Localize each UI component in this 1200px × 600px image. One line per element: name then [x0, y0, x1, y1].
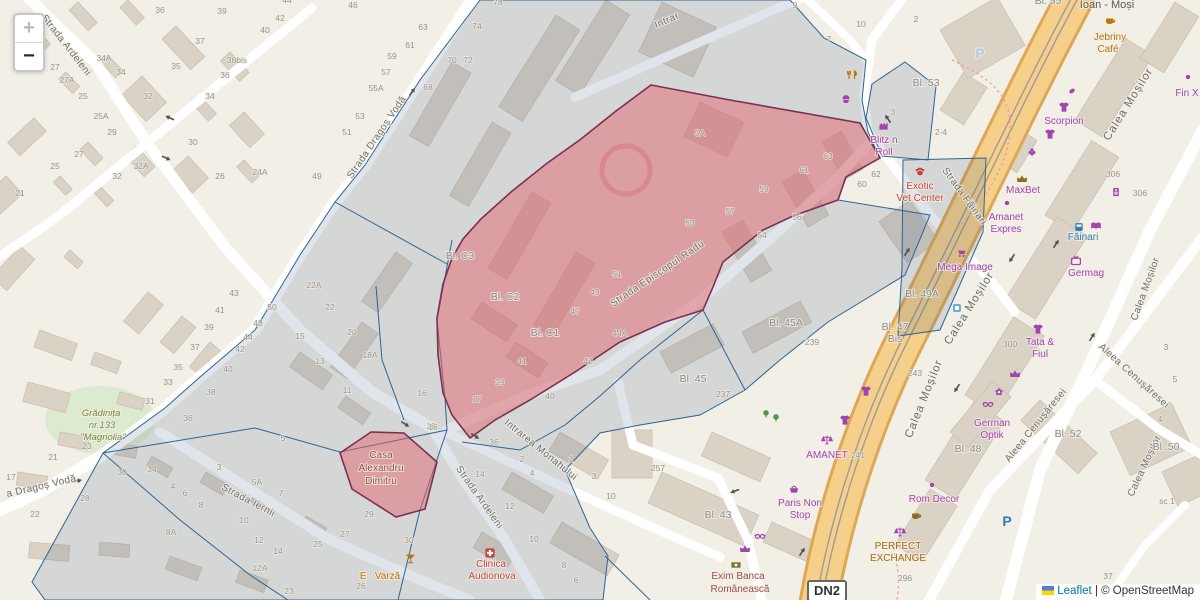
house-number: 5 [1173, 374, 1178, 384]
poi-label: Roll [875, 147, 892, 158]
dot-icon [1005, 201, 1009, 205]
poi-label: Casa [369, 450, 393, 461]
house-number: 6 [574, 575, 579, 585]
house-number: 46 [348, 0, 358, 10]
house-number: 3 [217, 462, 222, 472]
house-number: 10 [606, 491, 616, 501]
house-number: 26 [215, 171, 225, 181]
house-number: 59 [387, 51, 397, 61]
poi-label: Rom Decor [909, 494, 960, 505]
house-number: 31 [145, 396, 155, 406]
zoom-control: + − [13, 13, 45, 72]
house-number: 5A [252, 477, 263, 487]
house-number: 51 [612, 269, 622, 279]
house-number: 5 [281, 433, 286, 443]
house-number: 40 [260, 25, 270, 35]
poi-label: E : Varză [360, 571, 401, 582]
house-number: 35 [173, 362, 183, 372]
house-number: 23 [284, 586, 294, 596]
house-number: 22 [30, 509, 40, 519]
house-number: 32 [143, 91, 153, 101]
poi-label: Paris Non [778, 498, 822, 509]
house-number: 16 [428, 422, 438, 432]
house-number: 39 [204, 322, 214, 332]
house-number: 16 [417, 388, 427, 398]
house-number: 13 [315, 356, 325, 366]
house-number: 57 [381, 67, 391, 77]
house-number: 37 [1103, 571, 1113, 581]
house-number: 60 [857, 179, 867, 189]
house-number: 239 [805, 337, 819, 347]
house-number: 35 [171, 61, 181, 71]
house-number: 300 [1003, 339, 1017, 349]
house-number: 51 [342, 127, 352, 137]
house-number: 8 [562, 560, 567, 570]
house-number: 34 [147, 464, 157, 474]
house-number: 3 [891, 107, 896, 117]
poi-label: Jebriny [1094, 32, 1126, 43]
poi-label: Clinica [476, 559, 506, 570]
house-number: 40 [545, 391, 555, 401]
block-label: Bl. C2 [491, 291, 520, 303]
osm-credit-link[interactable]: © OpenStreetMap [1101, 585, 1194, 597]
poi-label: Audionova [468, 571, 516, 582]
house-number: 27A [59, 75, 74, 85]
house-number: 17 [472, 394, 482, 404]
house-number: 4 [1158, 414, 1163, 424]
house-number: 3 [592, 471, 597, 481]
block-label: Bis [888, 333, 903, 345]
house-number: 1 [569, 454, 574, 464]
dot-icon [930, 483, 934, 487]
house-number: 78 [493, 0, 503, 7]
house-number: 74 [472, 21, 482, 31]
house-number: 12 [254, 535, 264, 545]
house-number: 63 [823, 151, 833, 161]
poi-label: Expres [990, 224, 1021, 235]
house-number: 36 [220, 70, 230, 80]
poi-label: AMANET [806, 450, 848, 461]
house-number: 59 [759, 184, 769, 194]
house-number: 36 [183, 413, 193, 423]
house-number: 21 [48, 452, 58, 462]
poi-label: Ioan - Moși [1080, 0, 1134, 11]
poi-label: Germag [1068, 268, 1104, 279]
house-number: 57 [725, 206, 735, 216]
house-number: 3 [1164, 342, 1169, 352]
poi-label: EXCHANGE [870, 553, 926, 564]
house-number: 30 [404, 535, 414, 545]
house-number: 18A [362, 350, 377, 360]
house-number: 27 [340, 529, 350, 539]
poi-label: Dimitru [365, 476, 397, 487]
map-canvas[interactable]: Strada ArdeleniStrada Dragoș VodăIntrarS… [0, 0, 1200, 600]
poi-label: German [974, 418, 1010, 429]
busstop-icon [953, 304, 961, 312]
house-number: 306 [1133, 188, 1147, 198]
house-number: 25 [313, 539, 323, 549]
clinic-icon [485, 548, 494, 557]
poi-label: P [1002, 513, 1011, 529]
house-number: 49 [312, 171, 322, 181]
house-number: 36bis [227, 55, 247, 65]
house-number: 41 [517, 356, 527, 366]
house-number: 37 [190, 342, 200, 352]
house-number: 49 [590, 287, 600, 297]
house-number: 26 [356, 581, 366, 591]
house-number: 50 [267, 302, 277, 312]
house-number: 53 [685, 218, 695, 228]
attribution-bar: Leaflet | © OpenStreetMap [1036, 584, 1200, 600]
house-number: 37 [195, 36, 205, 46]
house-number: 63 [418, 22, 428, 32]
block-label: Bl. C3 [446, 250, 475, 262]
house-number: 34 [205, 91, 215, 101]
house-number: 42 [275, 13, 285, 23]
poi-label: PERFECT [875, 541, 922, 552]
house-number: 28 [80, 493, 90, 503]
house-number: 27 [50, 62, 60, 72]
poi-label: Blitz n [870, 135, 897, 146]
poi-label: nr.133 [89, 420, 116, 431]
poi-label: Exotic [906, 181, 933, 192]
house-number: 39 [217, 6, 227, 16]
house-number: 9 [793, 0, 798, 10]
money-icon [731, 562, 740, 568]
house-number: 32A [133, 161, 148, 171]
house-number: 2 [520, 454, 525, 464]
block-label: Bl. 45 [680, 373, 707, 385]
house-number: 39 [495, 377, 505, 387]
house-number: 14 [475, 469, 485, 479]
house-number: 38 [206, 387, 216, 397]
house-number: 44 [243, 332, 253, 342]
house-number: 54 [757, 230, 767, 240]
house-number: 56 [792, 212, 802, 222]
poi-label: Scorpion [1044, 116, 1083, 127]
house-number: 237 [716, 389, 730, 399]
house-number: 14 [273, 546, 283, 556]
house-number: 55A [368, 83, 383, 93]
house-number: 2 [914, 14, 919, 24]
house-number: 22 [325, 302, 335, 312]
house-number: 29 [107, 127, 117, 137]
house-number: 21 [15, 188, 25, 198]
house-number: 40 [223, 364, 233, 374]
house-number: 257 [651, 463, 665, 473]
ukraine-flag-icon [1042, 586, 1054, 598]
house-number: 34 [116, 67, 126, 77]
poi-label: Café [1097, 44, 1119, 55]
block-label: Bl. 53 [913, 77, 940, 89]
block-label: Bl. C1 [531, 327, 560, 339]
house-number: 10 [239, 515, 249, 525]
poi-label: Tata & [1026, 337, 1055, 348]
house-number: 61 [405, 40, 415, 50]
house-number: 42 [583, 356, 593, 366]
house-number: 10 [529, 534, 539, 544]
house-number: 17 [6, 472, 16, 482]
house-number: 29 [364, 509, 374, 519]
house-number: 27 [74, 149, 84, 159]
house-number: 2-4 [935, 127, 948, 137]
house-number: 4 [171, 481, 176, 491]
poi-label: Românească [711, 584, 770, 595]
house-number: 30 [117, 467, 127, 477]
leaflet-link[interactable]: Leaflet [1057, 585, 1092, 597]
zoom-in-button[interactable]: + [15, 15, 43, 43]
poi-label: Optik [980, 430, 1004, 441]
house-number: 23 [82, 441, 92, 451]
house-number: 42 [235, 344, 245, 354]
house-number: 44A [612, 328, 627, 338]
house-number: 4 [530, 468, 535, 478]
poi-label: Fin X [1175, 88, 1199, 99]
block-label: Bl. 45A [769, 317, 803, 329]
house-number: 41 [215, 305, 225, 315]
poi-label: Mega Image [937, 262, 993, 273]
house-number: sc 1 [1159, 496, 1175, 506]
house-number: 12A [252, 563, 267, 573]
house-number: 70 [447, 55, 457, 65]
house-number: 68 [423, 82, 433, 92]
poi-label: Fiul [1032, 349, 1048, 360]
poi-label: Amanet [989, 212, 1024, 223]
bus-icon [1075, 223, 1082, 231]
poi-label: P [975, 45, 984, 61]
attribution-separator: | [1092, 585, 1101, 597]
house-number: 6 [183, 488, 188, 498]
poi-label: Exim Banca [711, 571, 765, 582]
house-number: 296 [898, 573, 912, 583]
dot-icon [1186, 75, 1190, 79]
house-number: 12 [505, 501, 515, 511]
house-number: 24A [252, 167, 267, 177]
house-number: 241 [851, 450, 865, 460]
block-label: Bl. 43 [705, 509, 732, 521]
house-number: 30 [188, 137, 198, 147]
house-number: 48 [253, 318, 263, 328]
poi-label: Grădinița [82, 408, 121, 419]
block-label: Bl. 55 [1035, 0, 1062, 7]
house-number: 5A [695, 128, 706, 138]
house-number: 15 [295, 331, 305, 341]
block-label: Bl. 49A [905, 288, 939, 300]
house-number: 43 [229, 288, 239, 298]
house-number: 36 [155, 5, 165, 15]
house-number: 53 [355, 111, 365, 121]
house-number: 306 [1106, 169, 1120, 179]
block-label: Bl. 47 [882, 321, 909, 333]
house-number: 25A [93, 111, 108, 121]
block-label: Bl. 48 [955, 443, 982, 455]
block-label: Bl. 52 [1055, 428, 1082, 440]
house-number: 34A [96, 53, 111, 63]
speaker-icon [1113, 188, 1119, 196]
house-number: 36 [489, 437, 499, 447]
poi-label: Alexandru [358, 463, 403, 474]
house-number: 25 [78, 91, 88, 101]
house-number: 11 [343, 385, 352, 395]
house-number: 61 [799, 165, 809, 175]
house-number: 7 [827, 34, 832, 44]
house-number: 243 [908, 368, 922, 378]
block-label: Bl. 50 [1153, 441, 1180, 453]
house-number: 25 [50, 161, 60, 171]
map-application: Strada ArdeleniStrada Dragoș VodăIntrarS… [0, 0, 1200, 600]
house-number: 10 [856, 19, 866, 29]
zoom-out-button[interactable]: − [15, 43, 43, 70]
house-number: 8A [166, 527, 177, 537]
poi-label: Făinari [1068, 232, 1099, 243]
house-number: 20 [347, 327, 357, 337]
house-number: 7 [279, 488, 284, 498]
house-number: 62 [871, 169, 881, 179]
poi-label: Stop [790, 510, 811, 521]
house-number: 33 [163, 377, 173, 387]
house-number: 47 [570, 306, 580, 316]
house-number: 22A [306, 280, 321, 290]
poi-label: Vet Center [896, 193, 944, 204]
house-number: 44 [282, 0, 292, 5]
road-shield-dn2: DN2 [807, 580, 847, 600]
house-number: 8 [199, 500, 204, 510]
house-number: 32 [112, 171, 122, 181]
poi-label: MaxBet [1006, 185, 1040, 196]
house-number: 72 [463, 55, 473, 65]
